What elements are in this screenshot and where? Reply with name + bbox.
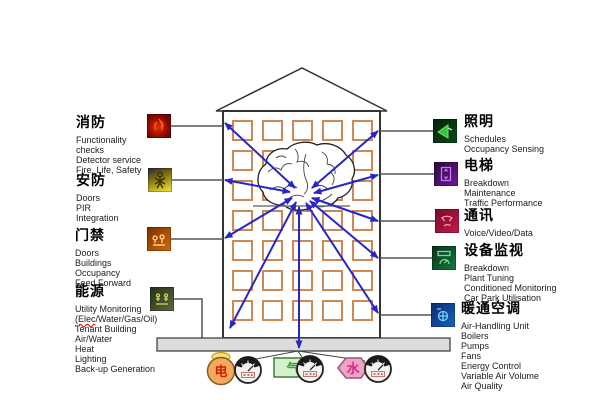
section-hvac-line: Energy Control — [461, 361, 591, 371]
section-lighting-line: Occupancy Sensing — [464, 144, 594, 154]
electric-gauge-dial — [235, 357, 261, 383]
section-elevator: 电梯 Breakdown Maintenance Traffic Perform… — [464, 155, 594, 208]
gas-gauge-dial — [297, 356, 323, 382]
section-hvac-line: Air Quality — [461, 381, 591, 391]
section-access-line: Buildings — [75, 258, 205, 268]
section-fire-line: Functionality — [76, 135, 206, 145]
section-energy-line: (Elec/Water/Gas/Oil) — [75, 314, 205, 324]
section-security-heading: 安防 — [76, 170, 206, 190]
section-monitor-heading: 设备监视 — [464, 240, 594, 260]
equipment-monitor-icon — [432, 246, 456, 270]
section-hvac-heading: 暖通空调 — [461, 298, 591, 318]
lighting-icon — [433, 119, 457, 143]
section-elevator-heading: 电梯 — [464, 155, 594, 175]
section-comms-heading: 通讯 — [464, 205, 594, 225]
section-fire: 消防 Functionality checks Detector service… — [76, 112, 206, 175]
section-access-line: Occupancy — [75, 268, 205, 278]
section-lighting: 照明 Schedules Occupancy Sensing — [464, 111, 594, 154]
water-gauge-dial — [365, 356, 391, 382]
hvac-icon — [431, 303, 455, 327]
section-hvac: 暖通空调 Air-Handling Unit Boilers Pumps Fan… — [461, 298, 591, 391]
section-hvac-line: Air-Handling Unit — [461, 321, 591, 331]
section-comms-line: Voice/Video/Data — [464, 228, 594, 238]
section-lighting-line: Schedules — [464, 134, 594, 144]
electric-meter-label: 电 — [214, 364, 227, 379]
section-monitor: 设备监视 Breakdown Plant Tuning Conditioned … — [464, 240, 594, 303]
section-fire-heading: 消防 — [76, 112, 206, 132]
section-elevator-line: Maintenance — [464, 188, 594, 198]
section-energy-line: Tenant Building — [75, 324, 205, 334]
section-energy-heading: 能源 — [75, 281, 205, 301]
section-elevator-line: Breakdown — [464, 178, 594, 188]
section-access-heading: 门禁 — [75, 225, 205, 245]
section-security-line: Integration — [76, 213, 206, 223]
communications-icon — [435, 209, 459, 233]
elevator-icon — [434, 162, 458, 186]
section-energy-line: Heat — [75, 344, 205, 354]
water-meter-label: 水 — [346, 361, 360, 376]
section-fire-line: checks — [76, 145, 206, 155]
section-security-line: PIR — [76, 203, 206, 213]
section-energy-line: Back-up Generation — [75, 364, 205, 374]
section-monitor-line: Conditioned Monitoring — [464, 283, 594, 293]
section-lighting-heading: 照明 — [464, 111, 594, 131]
section-security: 安防 Doors PIR Integration — [76, 170, 206, 223]
section-security-line: Doors — [76, 193, 206, 203]
spellcheck-marked-text: (Elec — [75, 314, 96, 324]
section-monitor-line: Breakdown — [464, 263, 594, 273]
section-comms: 通讯 Voice/Video/Data — [464, 205, 594, 238]
section-energy-line: Utility Monitoring — [75, 304, 205, 314]
section-hvac-line: Pumps — [461, 341, 591, 351]
section-hvac-line: Boilers — [461, 331, 591, 341]
section-energy-line: Air/Water — [75, 334, 205, 344]
section-energy-line: Lighting — [75, 354, 205, 364]
building-roof — [216, 68, 387, 111]
section-fire-line: Detector service — [76, 155, 206, 165]
section-hvac-line: Fans — [461, 351, 591, 361]
water-meter: 水 — [338, 358, 368, 378]
electric-meter: 电 — [208, 353, 235, 385]
section-access-line: Doors — [75, 248, 205, 258]
section-energy: 能源 Utility Monitoring (Elec/Water/Gas/Oi… — [75, 281, 205, 374]
section-energy-line-rest: /Water/Gas/Oil) — [96, 314, 158, 324]
section-access: 门禁 Doors Buildings Occupancy Feed Forwar… — [75, 225, 205, 288]
section-monitor-line: Plant Tuning — [464, 273, 594, 283]
building-automation-diagram: 电 气 水 — [0, 0, 600, 400]
section-hvac-line: Variable Air Volume — [461, 371, 591, 381]
